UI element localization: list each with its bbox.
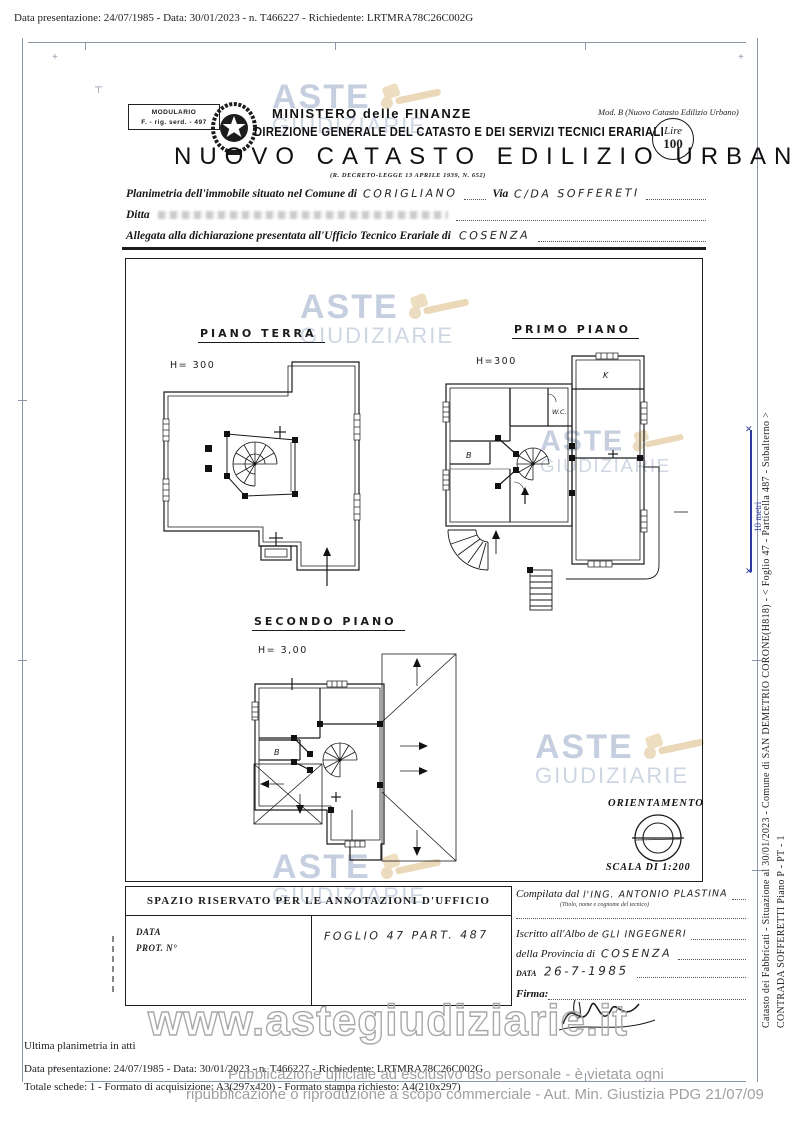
document-page: Data presentazione: 24/07/1985 - Data: 3…	[0, 0, 800, 1132]
spiral-stair	[233, 442, 277, 486]
provincia-row: della Provincia di COSENZA	[516, 946, 746, 960]
foglio-part-value: FOGLIO 47 PART. 487	[324, 928, 489, 943]
watermark-url: www.astegiudiziarie.it	[148, 996, 628, 1046]
iscritto-value: GLI INGEGNERI	[602, 929, 687, 941]
frame-tick	[335, 42, 336, 50]
dotted-fill	[464, 186, 487, 200]
comune-value: CORIGLIANO	[363, 187, 458, 201]
form-row-ditta: Ditta	[126, 207, 706, 221]
frame-tick	[18, 660, 27, 661]
spiral-stair	[323, 743, 357, 777]
scalebar-end-mark: ✕	[745, 566, 753, 577]
office-prot-label: PROT. N°	[136, 943, 177, 953]
modulario-bottom: F. - rig. serd. - 497	[129, 118, 219, 128]
modulario-top: MODULARIO	[129, 108, 219, 118]
room-label-k: K	[603, 371, 609, 380]
form-row-ufficio: Allegata alla dichiarazione presentata a…	[126, 228, 706, 242]
dotted-fill	[637, 964, 746, 978]
office-box-header: SPAZIO RISERVATO PER LE ANNOTAZIONI D'UF…	[126, 887, 511, 907]
dotted-fill	[678, 946, 746, 960]
top-meta-line: Data presentazione: 24/07/1985 - Data: 3…	[14, 12, 473, 24]
dotted-fill	[732, 886, 746, 900]
frame-tick	[18, 400, 27, 401]
office-annotations-box: SPAZIO RISERVATO PER LE ANNOTAZIONI D'UF…	[125, 886, 512, 1006]
scalebar-label: 10 metri	[753, 470, 763, 532]
lire-stamp: Lire 100	[652, 118, 694, 160]
secondo-piano-label: SECONDO PIANO	[252, 615, 405, 631]
frame-tick	[585, 42, 586, 50]
direzione-subtitle: DIREZIONE GENERALE DEL CATASTO E DEI SER…	[254, 124, 664, 139]
form-row-comune: Planimetria dell'immobile situato nel Co…	[126, 186, 706, 200]
primo-piano-label: PRIMO PIANO	[512, 323, 639, 339]
room-label-b: B	[466, 451, 472, 460]
frame-right-line	[757, 38, 758, 1082]
entrance-arrow	[323, 547, 331, 586]
modulario-box: MODULARIO F. - rig. serd. - 497	[128, 104, 220, 130]
office-box-vdivider	[311, 915, 312, 1005]
corner-mark: ┬	[95, 82, 102, 93]
curved-ext-stair	[448, 530, 500, 570]
scalebar-line	[750, 430, 752, 572]
ministero-title: MINISTERO delle FINANZE	[272, 106, 472, 121]
roof-right	[382, 654, 456, 861]
pillar-marks	[205, 431, 298, 499]
titolo-note: (Titolo, nome e cognome del tecnico)	[560, 902, 649, 908]
via-value: C/DA SOFFERETI	[514, 186, 640, 200]
floor-plan-primo-piano: B W.C. K	[438, 342, 703, 632]
dotted-fill	[456, 207, 706, 221]
iscritto-row: Iscritto all'Albo de GLI INGEGNERI	[516, 926, 746, 940]
window-hatch	[163, 414, 360, 520]
compilata-label: Compilata dal	[516, 888, 579, 900]
ufficio-value: COSENZA	[459, 229, 530, 243]
dotted-fill	[538, 228, 706, 242]
tecnico-data-label: DATA	[516, 969, 536, 978]
ultima-line: Ultima planimetria in atti	[24, 1040, 136, 1052]
scalebar-end-mark: ✕	[745, 424, 753, 435]
registration-cross: +	[52, 52, 58, 63]
registration-cross: +	[738, 52, 744, 63]
planimetria-label: Planimetria dell'immobile situato nel Co…	[126, 188, 357, 200]
sidebar-catasto-line: Catasto dei Fabbricati - Situazione al 3…	[761, 348, 772, 1028]
iscritto-label: Iscritto all'Albo de	[516, 928, 598, 940]
legal-line-2: ripubblicazione o riproduzione a scopo c…	[186, 1086, 764, 1103]
dotted-fill	[691, 926, 746, 940]
dotted-rule	[516, 912, 746, 919]
printer-mark	[112, 936, 114, 992]
piano-terra-label: PIANO TERRA	[198, 327, 325, 343]
room-label-wc: W.C.	[552, 408, 567, 416]
office-box-divider	[126, 915, 511, 916]
compilata-row: Compilata dal l'ING. ANTONIO PLASTINA	[516, 886, 746, 900]
orientation-compass-icon	[630, 812, 686, 864]
legal-line-1: Pubblicazione ufficiale ad esclusivo uso…	[228, 1066, 664, 1083]
ditta-label: Ditta	[126, 209, 150, 221]
pillar-marks	[495, 435, 643, 573]
ditta-smudged-value	[158, 211, 448, 219]
frame-top-line	[28, 42, 746, 43]
frame-tick	[85, 42, 86, 50]
bottom-stair	[530, 570, 552, 610]
data-row: DATA 26-7-1985	[516, 964, 746, 978]
tecnico-data-value: 26-7-1985	[544, 964, 629, 979]
document-title: NUOVO CATASTO EDILIZIO URBANO	[174, 143, 800, 171]
via-label: Via	[492, 188, 508, 200]
window-hatch	[443, 353, 647, 567]
mod-b-label: Mod. B (Nuovo Catasto Edilizio Urbano)	[598, 107, 739, 117]
spiral-stair	[517, 448, 549, 480]
room-label-b2: B	[274, 748, 280, 757]
decreto-note: (R. DECRETO-LEGGE 13 APRILE 1939, N. 652…	[330, 172, 486, 179]
allegata-label: Allegata alla dichiarazione presentata a…	[126, 230, 451, 242]
compilata-value: l'ING. ANTONIO PLASTINA	[583, 888, 728, 901]
orientamento-label: ORIENTAMENTO	[608, 798, 704, 809]
provincia-value: COSENZA	[601, 947, 672, 961]
sidebar-contrada-line: CONTRADA SOFFERETTI Piano P - PT - 1	[776, 838, 787, 1028]
floor-plan-secondo-piano: B	[232, 642, 507, 874]
dotted-fill	[646, 186, 706, 200]
frame-left-line	[22, 38, 23, 1082]
office-data-label: DATA	[136, 927, 161, 937]
lire-value: 100	[653, 136, 693, 152]
floor-plan-piano-terra	[155, 344, 440, 592]
provincia-label: della Provincia di	[516, 948, 595, 960]
header-rule	[122, 247, 706, 250]
scala-label: SCALA DI 1:200	[606, 862, 691, 873]
